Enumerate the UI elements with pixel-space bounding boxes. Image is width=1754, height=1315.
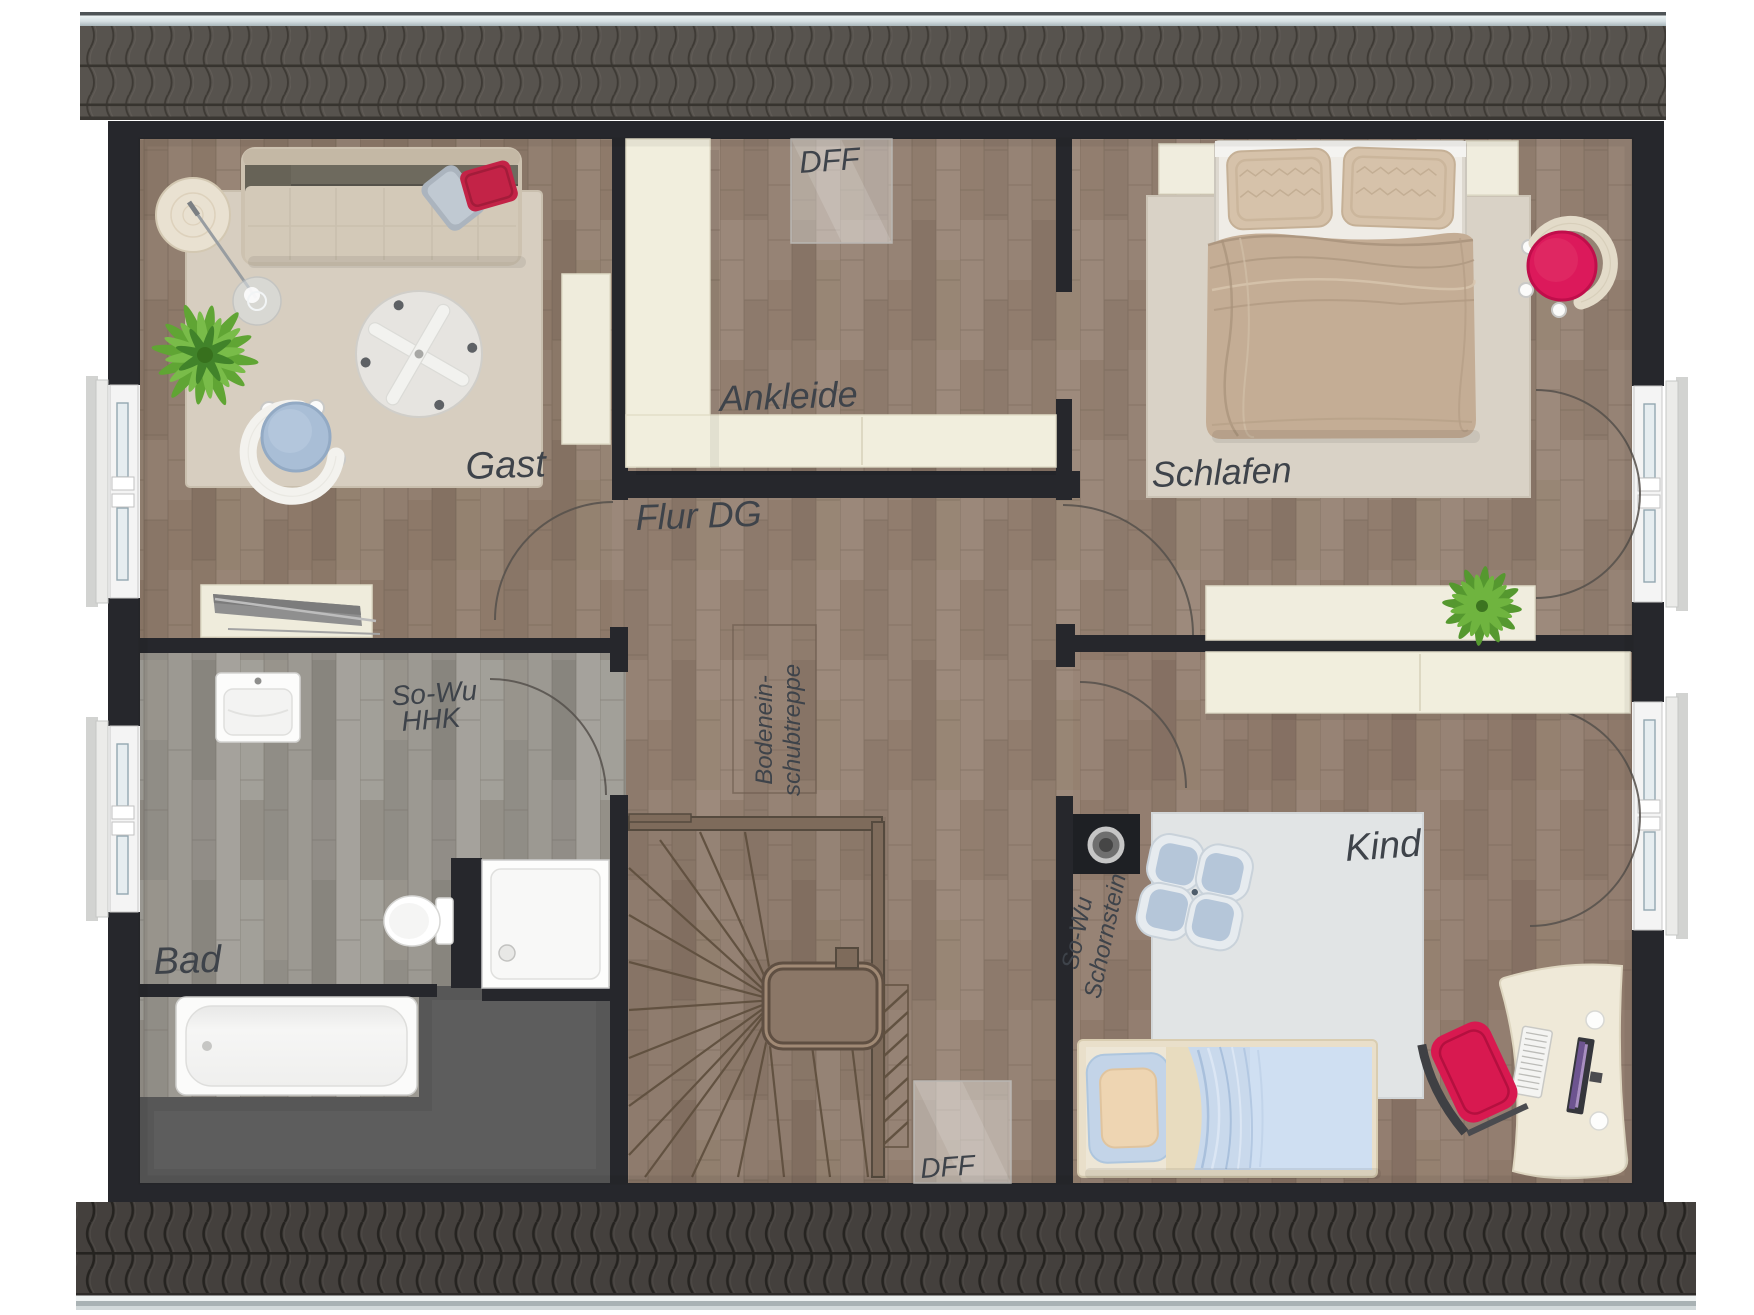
svg-text:Bodenein-: Bodenein- (751, 675, 778, 784)
svg-text:DFF: DFF (798, 141, 863, 180)
svg-text:Ankleide: Ankleide (717, 373, 858, 419)
svg-text:Gast: Gast (465, 443, 548, 488)
svg-text:HHK: HHK (400, 702, 462, 737)
svg-text:Kind: Kind (1344, 823, 1425, 870)
svg-text:Schlafen: Schlafen (1151, 449, 1292, 495)
svg-text:Bad: Bad (153, 939, 224, 983)
svg-text:schubtreppe: schubtreppe (779, 664, 806, 796)
svg-text:Flur DG: Flur DG (635, 493, 762, 538)
svg-text:DFF: DFF (919, 1149, 977, 1184)
